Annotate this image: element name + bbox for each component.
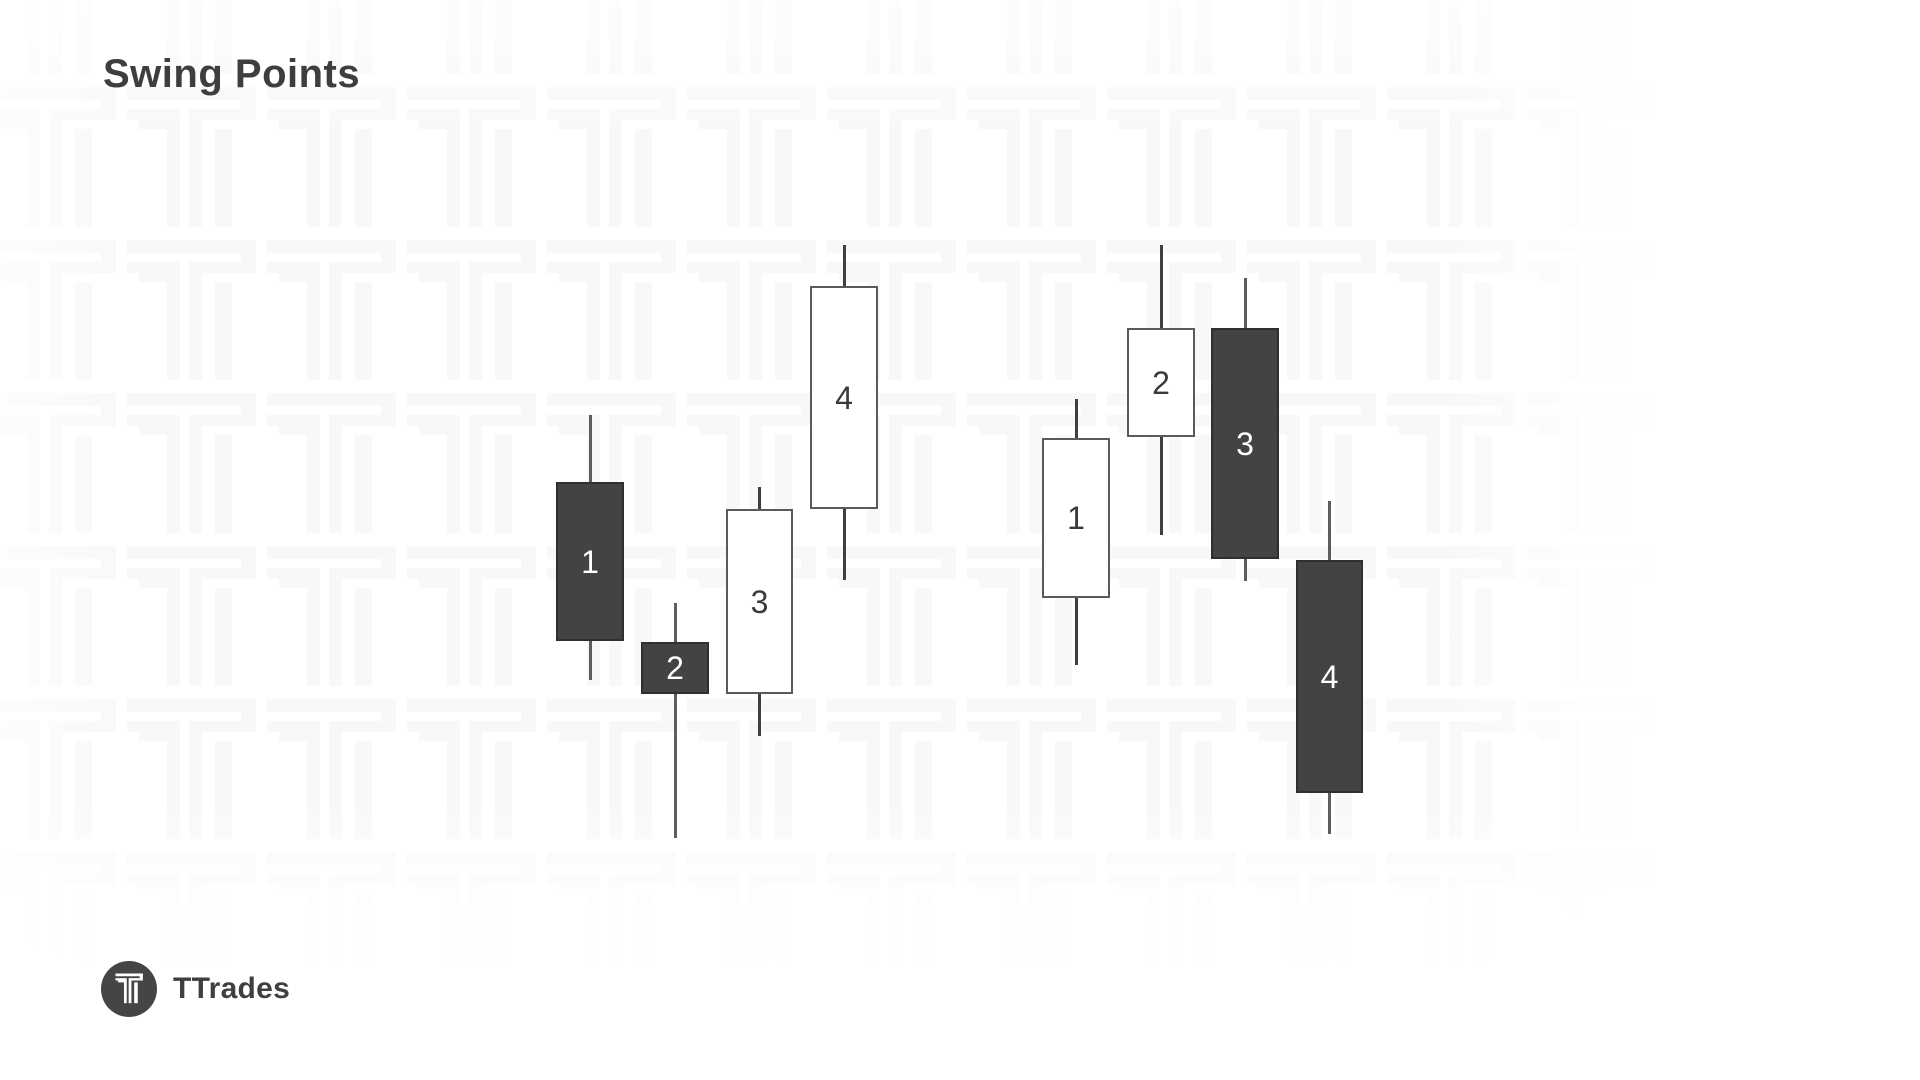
brand-name: TTrades xyxy=(173,972,290,1006)
brand-footer: TTrades xyxy=(101,961,290,1017)
candle-label: 4 xyxy=(1321,661,1339,693)
ttrades-t-icon xyxy=(101,961,157,1017)
candlestick-chart: 12341234 xyxy=(0,0,1920,1080)
candle-swing-high-sequence-4: 4 xyxy=(0,0,1920,1080)
page-title: Swing Points xyxy=(103,52,360,97)
swing-points-diagram: Swing Points 12341234 TTrades xyxy=(0,0,1920,1080)
candle-body: 4 xyxy=(1296,560,1363,793)
